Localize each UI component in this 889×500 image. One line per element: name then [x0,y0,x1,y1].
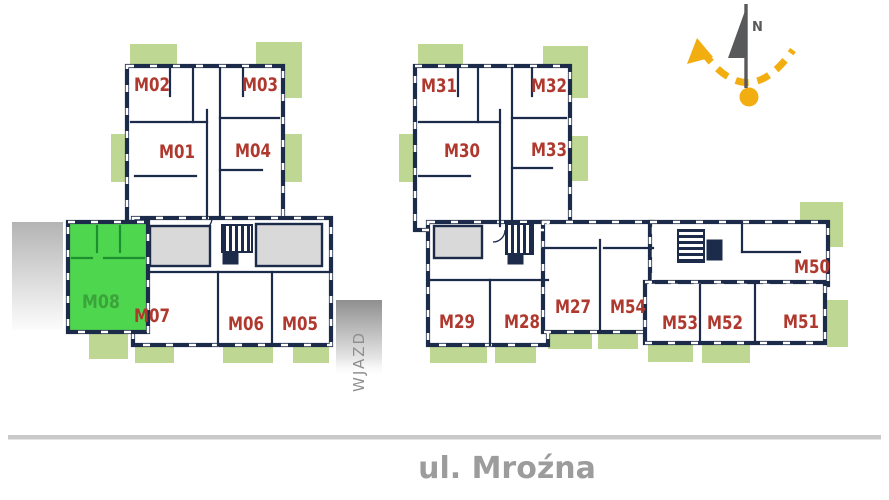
unit-label-m02[interactable]: M02 [134,74,170,96]
driveway-label: WJAZD [350,331,368,392]
unit-label-m33[interactable]: M33 [531,139,567,161]
unit-label-m52[interactable]: M52 [707,312,743,334]
balcony [702,343,750,363]
street-line [8,435,881,440]
balcony [135,345,174,363]
balcony [293,345,329,363]
unit-label-m07[interactable]: M07 [134,305,170,327]
unit-label-m03[interactable]: M03 [242,74,278,96]
balcony [648,343,693,362]
sun-dot-icon [740,88,759,107]
common-area [150,226,210,266]
staircase [506,224,533,254]
building-left [127,66,331,345]
balcony [285,134,302,182]
north-label: N [752,20,763,35]
balcony [548,332,592,349]
unit-label-m30[interactable]: M30 [444,140,480,162]
north-needle-icon [728,8,746,58]
common-area [434,226,482,258]
side-area-shade [12,222,63,330]
sun-arc-icon [703,50,793,83]
unit-label-m28[interactable]: M28 [504,311,540,333]
floorplan-svg: M08 M02 M03 M01 M04 M07 M06 M05 M31 M32 … [0,0,889,500]
unit-label-m31[interactable]: M31 [421,75,457,97]
unit-label-m04[interactable]: M04 [235,140,271,162]
staircase [222,225,252,252]
unit-label-m01[interactable]: M01 [159,141,195,163]
unit-label-m05[interactable]: M05 [282,313,318,335]
unit-label-m27[interactable]: M27 [555,296,591,318]
balcony [598,332,638,349]
balcony [223,345,273,363]
elevator [223,252,238,264]
floorplan-canvas: M08 M02 M03 M01 M04 M07 M06 M05 M31 M32 … [0,0,889,500]
unit-label-m50[interactable]: M50 [794,256,830,278]
compass: N [687,4,793,107]
unit-label-m54[interactable]: M54 [610,296,646,318]
street-label: ul. Mroźna [418,451,596,486]
staircase [678,230,704,262]
elevator [508,254,523,264]
balcony [572,136,588,181]
common-area [256,224,322,266]
balcony [430,345,487,363]
balcony [89,330,128,359]
unit-label-m06[interactable]: M06 [228,313,264,335]
unit-label-m51[interactable]: M51 [783,311,819,333]
balcony [827,300,848,347]
street: ul. Mroźna [8,435,881,486]
balcony [495,345,536,363]
unit-label-m32[interactable]: M32 [531,75,567,97]
elevator [707,240,722,260]
unit-label-m53[interactable]: M53 [662,312,698,334]
unit-label-m08[interactable]: M08 [82,291,120,313]
unit-label-m29[interactable]: M29 [439,311,475,333]
